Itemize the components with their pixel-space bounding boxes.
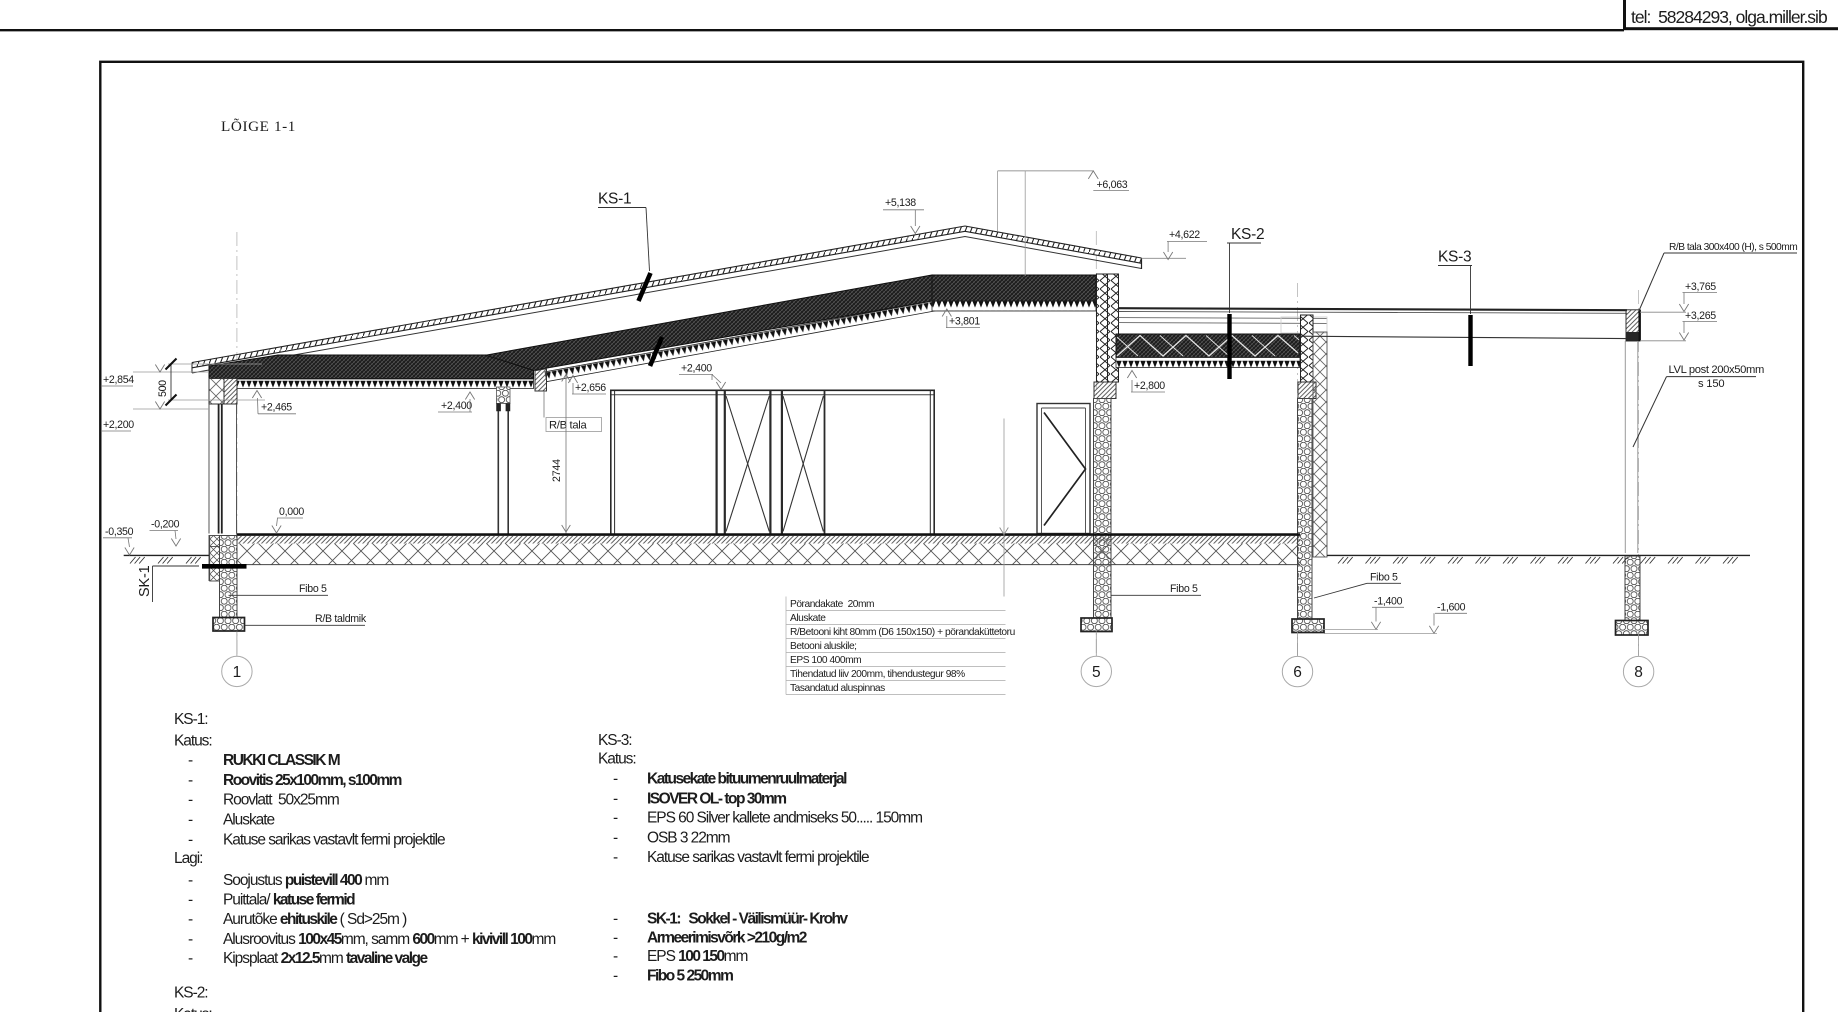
svg-text:EPS 100 400mm: EPS 100 400mm xyxy=(790,655,861,666)
svg-text:KS-1: KS-1 xyxy=(598,191,631,208)
svg-text:-: - xyxy=(188,772,193,789)
svg-text:0,000: 0,000 xyxy=(279,506,304,518)
svg-text:+6,063: +6,063 xyxy=(1097,179,1128,191)
svg-text:Lagi:: Lagi: xyxy=(174,850,202,867)
svg-text:SK-1: Sokkel - Väilismüür- K: SK-1: Sokkel - Väilismüür- Krohv xyxy=(647,911,849,928)
svg-text:+3,801: +3,801 xyxy=(949,316,980,328)
svg-text:-: - xyxy=(613,810,618,827)
svg-text:1: 1 xyxy=(233,664,242,681)
svg-text:-: - xyxy=(613,968,618,985)
svg-text:-: - xyxy=(613,911,618,928)
svg-text:+4,622: +4,622 xyxy=(1169,229,1200,241)
svg-text:tel: 58284293, olga.miller.si: tel: 58284293, olga.miller.sib xyxy=(1631,7,1827,27)
svg-text:KS-1:: KS-1: xyxy=(174,711,208,728)
svg-text:Armeerimisvõrk >210g/m2: Armeerimisvõrk >210g/m2 xyxy=(647,930,807,947)
svg-text:+2,656: +2,656 xyxy=(575,382,606,394)
svg-text:Tihendatud liiv 200mm, tihendu: Tihendatud liiv 200mm, tihendustegur 98% xyxy=(790,669,965,680)
svg-text:Tasandatud aluspinnas: Tasandatud aluspinnas xyxy=(790,683,885,694)
svg-text:Roovitis 25x100mm, s100mm: Roovitis 25x100mm, s100mm xyxy=(223,772,402,789)
svg-text:+5,138: +5,138 xyxy=(885,197,916,209)
svg-text:Pörandakate 20mm: Pörandakate 20mm xyxy=(790,599,874,610)
svg-text:-: - xyxy=(613,849,618,866)
svg-text:Katuse sarikas vastavlt fermi: Katuse sarikas vastavlt fermi projektile xyxy=(223,832,445,849)
svg-text:KS-3:: KS-3: xyxy=(598,732,632,749)
svg-text:RUKKI CLASSIK M: RUKKI CLASSIK M xyxy=(223,752,340,769)
svg-text:KS-2:: KS-2: xyxy=(174,985,208,1002)
svg-text:SK-1: SK-1 xyxy=(137,565,153,597)
svg-text:Fibo 5 250mm: Fibo 5 250mm xyxy=(647,968,733,985)
svg-text:+2,400: +2,400 xyxy=(681,363,712,375)
svg-text:-: - xyxy=(188,892,193,909)
svg-text:KS-3: KS-3 xyxy=(1438,249,1471,266)
svg-text:Roovlatt 50x25mm: Roovlatt 50x25mm xyxy=(223,792,339,809)
svg-text:Katus:: Katus: xyxy=(174,1006,212,1012)
svg-text:-: - xyxy=(188,812,193,829)
svg-text:-0,200: -0,200 xyxy=(151,519,180,531)
svg-text:Katuse sarikas vastavlt fermi: Katuse sarikas vastavlt fermi projektile xyxy=(647,849,869,866)
svg-text:8: 8 xyxy=(1634,664,1643,681)
svg-text:500: 500 xyxy=(157,380,169,397)
svg-text:-: - xyxy=(188,911,193,928)
svg-text:ISOVER OL- top 30mm: ISOVER OL- top 30mm xyxy=(647,791,786,808)
svg-text:-: - xyxy=(613,930,618,947)
svg-text:KS-2: KS-2 xyxy=(1231,226,1264,243)
svg-text:+2,400: +2,400 xyxy=(441,400,472,412)
svg-text:5: 5 xyxy=(1092,664,1101,681)
svg-text:-: - xyxy=(188,792,193,809)
svg-text:-: - xyxy=(188,872,193,889)
svg-text:Betooni aluskile;: Betooni aluskile; xyxy=(790,641,857,652)
svg-text:LVL post 200x50mm: LVL post 200x50mm xyxy=(1669,364,1764,376)
svg-text:6: 6 xyxy=(1293,664,1302,681)
svg-text:-: - xyxy=(613,948,618,965)
svg-text:-: - xyxy=(613,771,618,788)
svg-text:EPS 100 150mm: EPS 100 150mm xyxy=(647,948,748,965)
svg-text:Aurutõke ehituskile ( Sd>25m ): Aurutõke ehituskile ( Sd>25m ) xyxy=(223,911,407,928)
svg-text:2744: 2744 xyxy=(551,459,563,482)
svg-text:Aluskate: Aluskate xyxy=(223,812,274,829)
svg-text:-: - xyxy=(188,832,193,849)
svg-text:Kipsplaat 2x12.5mm tavaline va: Kipsplaat 2x12.5mm tavaline valge xyxy=(223,950,429,967)
svg-text:Katus:: Katus: xyxy=(598,751,636,768)
svg-text:-1,600: -1,600 xyxy=(1437,602,1466,614)
svg-text:Alusroovitus 100x45mm, samm 60: Alusroovitus 100x45mm, samm 600mm + kivi… xyxy=(223,931,555,948)
svg-text:+2,854: +2,854 xyxy=(103,374,134,386)
svg-text:-: - xyxy=(613,791,618,808)
svg-text:-0,350: -0,350 xyxy=(105,526,134,538)
svg-text:Fibo 5: Fibo 5 xyxy=(1170,583,1198,595)
svg-text:-: - xyxy=(188,752,193,769)
svg-text:R/B tala: R/B tala xyxy=(549,420,587,432)
svg-text:Katus:: Katus: xyxy=(174,733,212,750)
svg-text:-: - xyxy=(188,950,193,967)
svg-text:R/B tala 300x400 (H), s 500mm: R/B tala 300x400 (H), s 500mm xyxy=(1669,242,1797,253)
svg-text:OSB 3 22mm: OSB 3 22mm xyxy=(647,830,730,847)
svg-text:s 150: s 150 xyxy=(1698,378,1724,390)
svg-text:+3,265: +3,265 xyxy=(1685,310,1716,322)
svg-text:R/Betooni kiht 80mm (D6 150x15: R/Betooni kiht 80mm (D6 150x150) + pöran… xyxy=(790,627,1015,638)
svg-text:LÕIGE 1-1: LÕIGE 1-1 xyxy=(221,118,296,135)
svg-text:Soojustus puistevill 400 mm: Soojustus puistevill 400 mm xyxy=(223,872,388,889)
svg-text:-: - xyxy=(613,830,618,847)
svg-text:+2,200: +2,200 xyxy=(103,419,134,431)
svg-text:Fibo 5: Fibo 5 xyxy=(1370,572,1398,584)
svg-text:-: - xyxy=(188,931,193,948)
svg-text:+2,465: +2,465 xyxy=(261,402,292,414)
svg-text:-1,400: -1,400 xyxy=(1374,596,1403,608)
svg-text:Puittala/ katuse fermid: Puittala/ katuse fermid xyxy=(223,892,355,909)
svg-text:+3,765: +3,765 xyxy=(1685,281,1716,293)
svg-text:Aluskate: Aluskate xyxy=(790,613,826,624)
svg-text:EPS 60 Silver kallete andmisek: EPS 60 Silver kallete andmiseks 50..... … xyxy=(647,810,922,827)
svg-text:Katusekate bituumenruulmaterja: Katusekate bituumenruulmaterjal xyxy=(647,771,847,788)
svg-text:+2,800: +2,800 xyxy=(1134,380,1165,392)
svg-text:Fibo 5: Fibo 5 xyxy=(299,583,327,595)
svg-text:R/B taldmik: R/B taldmik xyxy=(315,613,367,625)
